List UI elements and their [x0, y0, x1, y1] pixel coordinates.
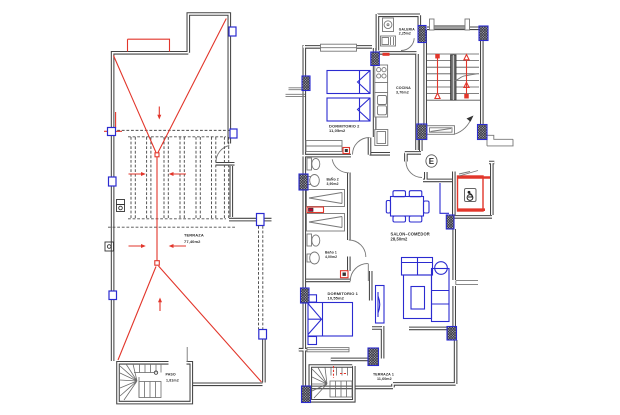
svg-text:3,90m2: 3,90m2	[327, 182, 339, 186]
svg-text:10,55m2: 10,55m2	[328, 295, 345, 300]
svg-text:1,81m2: 1,81m2	[166, 379, 179, 383]
svg-text:TERRAZA 1: TERRAZA 1	[373, 373, 394, 377]
svg-text:11,05m2: 11,05m2	[329, 128, 346, 133]
svg-text:77,40m2: 77,40m2	[184, 239, 201, 244]
svg-text:BaÑo 2: BaÑo 2	[327, 177, 339, 182]
svg-text:11,60m2: 11,60m2	[377, 377, 392, 381]
svg-text:E: E	[429, 157, 435, 166]
svg-text:TERRAZA: TERRAZA	[184, 233, 204, 238]
svg-text:PASO: PASO	[166, 373, 176, 377]
svg-text:Baño 1: Baño 1	[325, 250, 337, 254]
svg-text:28,50m2: 28,50m2	[391, 236, 408, 241]
svg-text:4,00m2: 4,00m2	[325, 255, 337, 259]
svg-text:2,25m2: 2,25m2	[399, 32, 411, 36]
svg-text:COCINA: COCINA	[396, 86, 411, 90]
svg-text:3,70m2: 3,70m2	[396, 91, 409, 95]
